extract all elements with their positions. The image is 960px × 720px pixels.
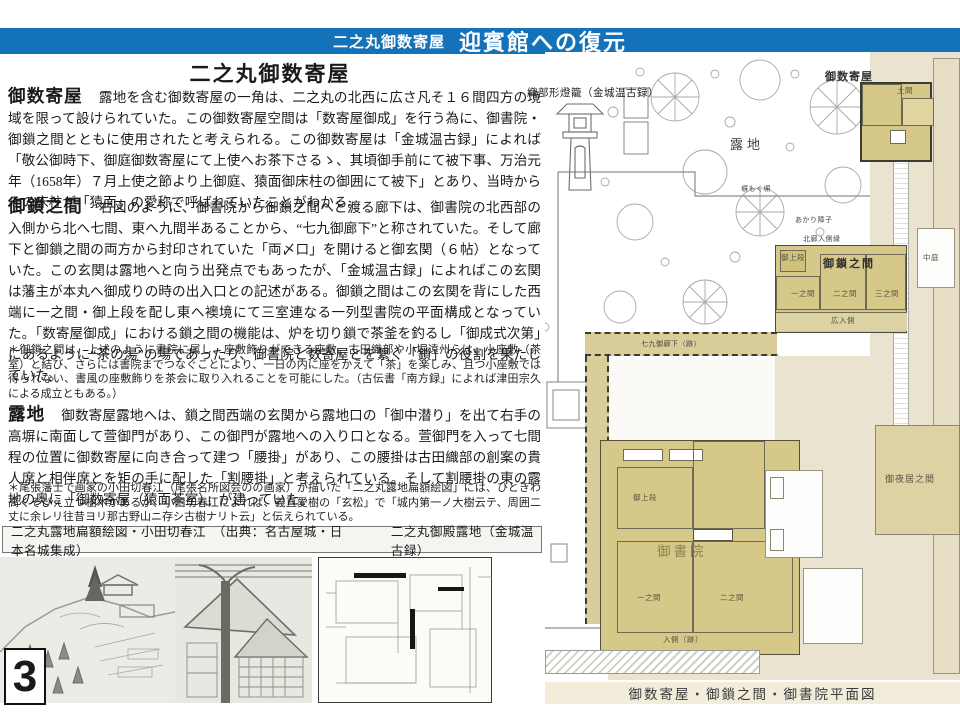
label-shoin-irikawa: 入側（跡）	[663, 634, 703, 645]
label-shoin-ninoma: 二之間	[720, 592, 744, 603]
floor-plan: 中庭 御数寄屋 土間 露地 塀もく塀 あかり障子 北廊入側縁 御鎖之間 御上段 …	[545, 52, 960, 704]
sketch-teahouse-image	[175, 557, 312, 703]
label-shoin-ichinoma: 一之間	[637, 592, 661, 603]
label-kusari-ichinoma: 一之間	[791, 288, 815, 299]
label-kusari-joudan: 御上段	[781, 252, 805, 263]
label-roji: 露地	[730, 134, 764, 153]
section-osukiya-text: 露地を含む御数寄屋の一角は、二之丸の北西に広さ凡そ１６間四方の境域を限って設けら…	[8, 90, 541, 210]
stone-lantern-icon	[557, 104, 603, 190]
plan-court-west	[608, 356, 775, 440]
label-corridor-79: 七九御廊下（跡）	[641, 339, 701, 349]
label-kusari-ninoma: 二之間	[833, 288, 857, 299]
section-osukiya-label: 御数寄屋	[8, 86, 83, 106]
label-shoin-joudan: 御上段	[633, 492, 657, 503]
plan-east-rooms	[933, 58, 960, 674]
page-title: 二之丸御数寄屋	[150, 58, 390, 88]
plan-stone-wall	[545, 650, 760, 674]
label-kusari-sannoma: 三之間	[875, 288, 899, 299]
label-hokuro: 北廊入側縁	[803, 234, 841, 244]
note-roji: ＊尾張藩士で画家の小田切春江（尾張名所図会のの画家）が描いた「二之丸露地扁額絵図…	[8, 481, 541, 525]
label-fence: 塀もく塀	[741, 184, 771, 194]
label-nakaniwa: 中庭	[923, 252, 939, 263]
page-number: 3	[4, 648, 46, 705]
image-caption-bar: 二之丸露地扁額絵図・小田切春江 （出典：名古屋城・日本名城集成） 二之丸御殿露地…	[2, 526, 542, 553]
title-bar: 二之丸御数寄屋 迎賓館への復元	[0, 28, 960, 54]
plan-caption: 御数寄屋・御鎖之間・御書院平面図	[545, 682, 960, 704]
plan-court-1	[765, 470, 823, 558]
lineplan-image	[318, 557, 492, 703]
title-small: 二之丸御数寄屋	[333, 31, 445, 52]
note-kusarinoma: ＊御鎖之間は、上述のように書院に属し、座敷飾りができる座敷。古田織部や小堀遠州ら…	[8, 343, 541, 401]
plan-court-2	[803, 568, 863, 644]
label-doma: 土間	[897, 85, 913, 96]
label-sukiya: 御数寄屋	[825, 68, 873, 84]
section-roji-label: 露地	[8, 404, 45, 424]
caption-goten-roji: 二之丸御殿露地（金城温古録）	[391, 521, 541, 559]
label-akari-shoji: あかり障子	[795, 215, 833, 225]
label-yoinoma: 御夜居之間	[885, 472, 935, 485]
label-shoin: 御書院	[657, 540, 707, 560]
sketch-teahouse-drawing	[175, 557, 312, 703]
label-lantern: 織部形燈籠（金城温古録）	[527, 85, 659, 100]
lineplan-drawing	[318, 557, 492, 703]
section-kusarinoma-label: 御鎖之間	[8, 196, 83, 216]
label-kusarinoma: 御鎖之間	[823, 255, 875, 271]
caption-hengaku: 二之丸露地扁額絵図・小田切春江 （出典：名古屋城・日本名城集成）	[11, 521, 349, 559]
label-kusari-hirohairi: 広入側	[831, 315, 855, 326]
plan-sukiya-building	[860, 82, 932, 162]
section-osukiya: 御数寄屋露地を含む御数寄屋の一角は、二之丸の北西に広さ凡そ１６間四方の境域を限っ…	[8, 86, 541, 213]
